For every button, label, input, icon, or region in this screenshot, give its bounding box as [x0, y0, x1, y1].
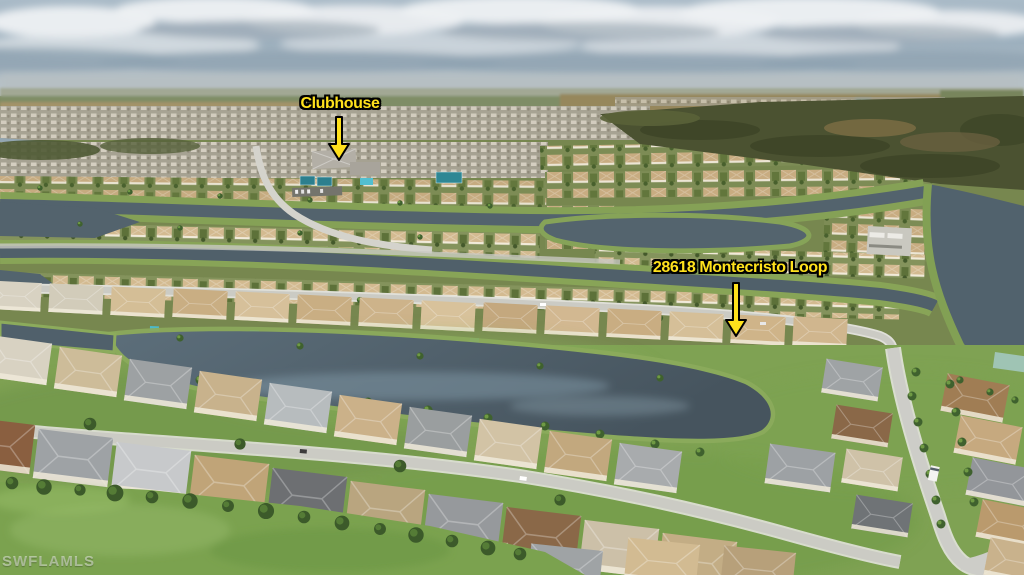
clubhouse-label: Clubhouse: [300, 94, 379, 113]
aerial-photo-scene: [0, 0, 1024, 575]
clouds: [0, 0, 1024, 76]
property-address-label: 28618 Montecristo Loop: [653, 258, 827, 277]
aerial-photo: Clubhouse 28618 Montecristo Loop SWFLAML…: [0, 0, 1024, 575]
property-arrow-down-icon: [725, 282, 747, 338]
clubhouse-arrow-down-icon: [328, 116, 350, 162]
mls-watermark: SWFLAMLS: [2, 553, 95, 570]
